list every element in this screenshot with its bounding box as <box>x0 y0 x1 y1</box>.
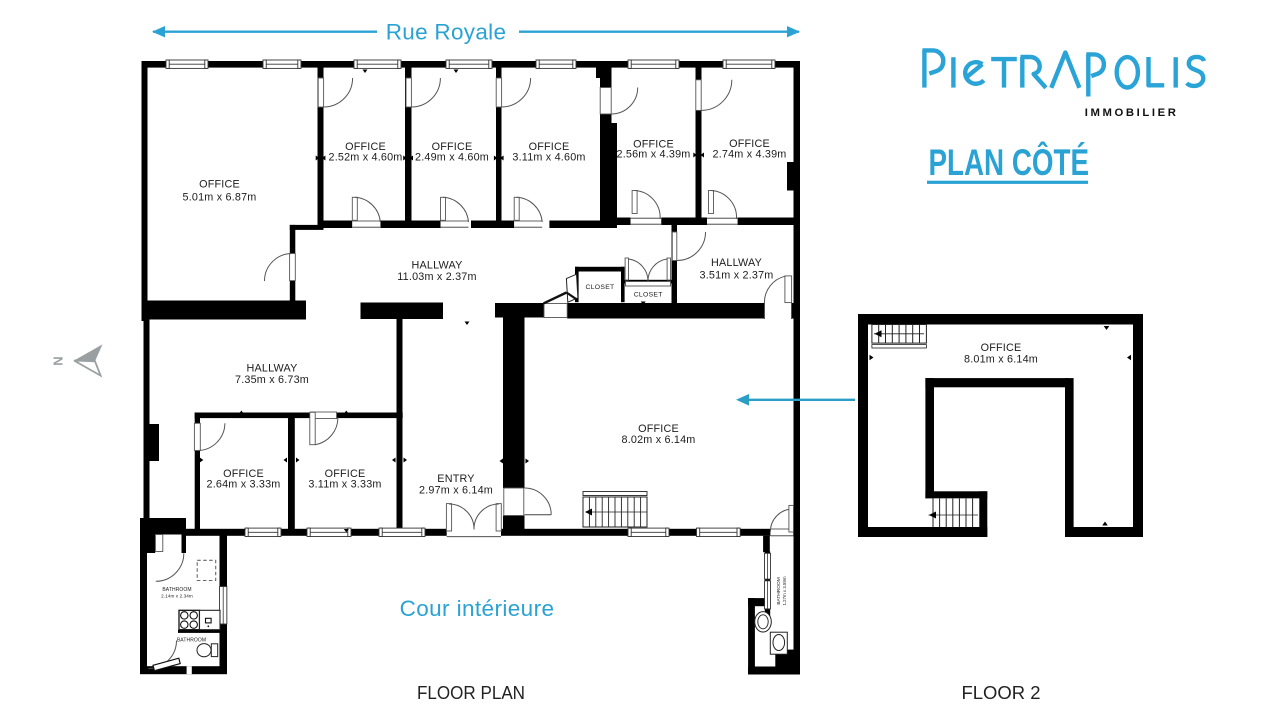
svg-text:2.56m x 4.39m: 2.56m x 4.39m <box>616 149 690 161</box>
svg-text:3.11m x 3.33m: 3.11m x 3.33m <box>308 479 381 491</box>
svg-text:3.11m x 4.60m: 3.11m x 4.60m <box>512 151 585 163</box>
svg-text:7.35m x 6.73m: 7.35m x 6.73m <box>235 374 309 386</box>
svg-text:HALLWAY: HALLWAY <box>247 363 298 375</box>
svg-text:CLOSET: CLOSET <box>634 292 663 299</box>
svg-text:N: N <box>51 356 66 365</box>
svg-text:Cour intérieure: Cour intérieure <box>400 596 555 621</box>
svg-text:PLAN CÔTÉ: PLAN CÔTÉ <box>929 141 1090 183</box>
svg-text:BATHROOM: BATHROOM <box>177 638 206 644</box>
svg-text:CLOSET: CLOSET <box>586 284 615 291</box>
svg-text:1.27m x 3.59m: 1.27m x 3.59m <box>782 576 787 605</box>
svg-text:BATHROOM: BATHROOM <box>162 587 191 593</box>
svg-text:8.02m x 6.14m: 8.02m x 6.14m <box>621 434 695 446</box>
svg-text:11.03m x 2.37m: 11.03m x 2.37m <box>397 271 476 283</box>
svg-text:FLOOR 2: FLOOR 2 <box>962 682 1041 703</box>
svg-text:Rue Royale: Rue Royale <box>386 20 507 45</box>
svg-text:IMMOBILIER: IMMOBILIER <box>1085 107 1179 119</box>
svg-text:5.01m x 6.87m: 5.01m x 6.87m <box>182 191 256 203</box>
svg-text:FLOOR PLAN: FLOOR PLAN <box>417 682 525 703</box>
svg-text:2.97m x 6.14m: 2.97m x 6.14m <box>419 485 493 497</box>
svg-text:ENTRY: ENTRY <box>437 473 474 485</box>
svg-text:HALLWAY: HALLWAY <box>412 260 463 272</box>
svg-text:3.51m x 2.37m: 3.51m x 2.37m <box>699 270 773 282</box>
svg-text:HALLWAY: HALLWAY <box>711 257 762 269</box>
svg-text:OFFICE: OFFICE <box>199 178 240 190</box>
svg-text:2.14m x 2.34m: 2.14m x 2.34m <box>161 593 193 598</box>
svg-text:OFFICE: OFFICE <box>981 342 1022 354</box>
svg-text:2.64m x 3.33m: 2.64m x 3.33m <box>206 479 280 491</box>
svg-text:2.52m x 4.60m: 2.52m x 4.60m <box>328 151 402 163</box>
svg-text:2.74m x 4.39m: 2.74m x 4.39m <box>712 148 786 160</box>
svg-text:2.49m x 4.60m: 2.49m x 4.60m <box>415 151 489 163</box>
svg-text:8.01m x 6.14m: 8.01m x 6.14m <box>964 353 1038 365</box>
